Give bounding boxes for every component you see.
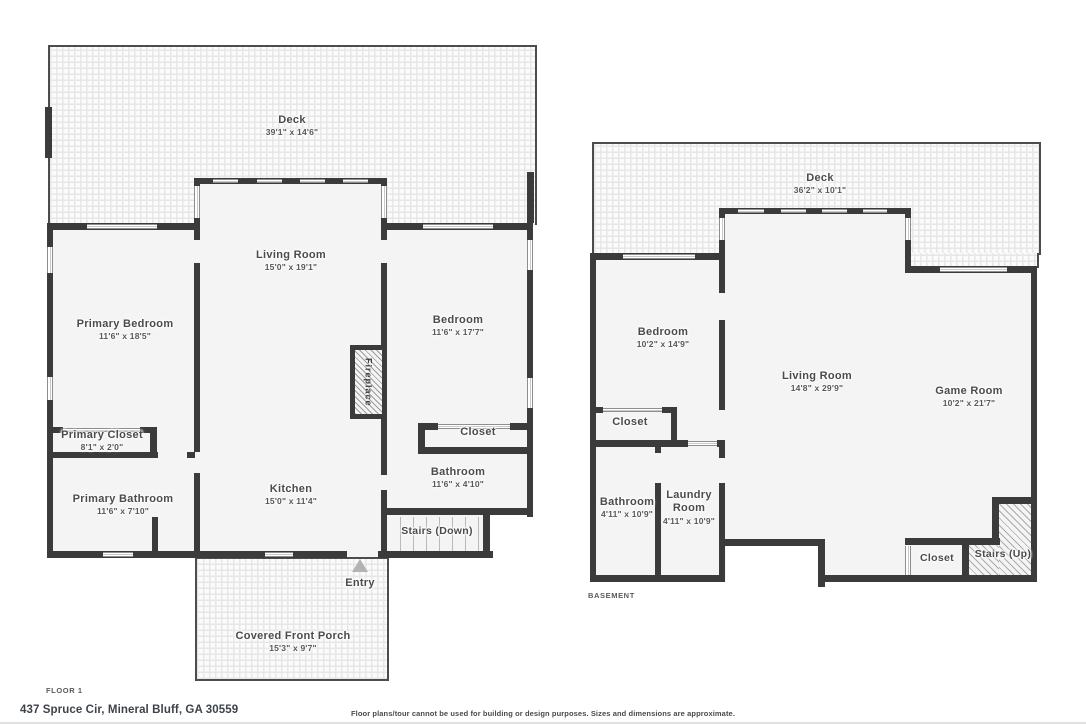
room-name: Deck: [794, 172, 847, 184]
wall-segment: [527, 172, 534, 223]
wall-segment: [510, 423, 528, 430]
fireplace-box: Fireplace: [350, 345, 387, 419]
wall-segment: [962, 538, 969, 582]
stair-tread: [478, 517, 479, 551]
room-name: Living Room: [256, 249, 326, 261]
room-name: Bathroom: [600, 496, 654, 508]
wall-segment: [595, 407, 603, 413]
room-name: Closet: [460, 426, 495, 438]
window: [343, 179, 368, 183]
wall-segment: [483, 508, 490, 558]
room-name: Primary Bedroom: [77, 318, 174, 330]
room-label-deck-f1: Deck 39'1" x 14'6": [266, 114, 319, 137]
room-label-bedroom-f1: Bedroom 11'6" x 17'7": [432, 314, 484, 337]
wall-segment: [187, 452, 195, 458]
room-label-closet2-basement: Closet: [920, 552, 954, 564]
wall-segment: [655, 447, 661, 453]
wall-segment: [194, 218, 200, 240]
room-dims: 10'2" x 21'7": [935, 398, 1003, 408]
room-name: Primary Bathroom: [73, 493, 174, 505]
basement-caption: BASEMENT: [588, 591, 635, 600]
window: [738, 209, 764, 213]
room-label-primary-closet: Primary Closet 8'1" x 2'0": [61, 429, 143, 452]
entry-arrow-icon: [352, 559, 368, 572]
window: [87, 224, 157, 229]
room-label-covered-front-porch: Covered Front Porch 15'3" x 9'7": [235, 630, 350, 653]
room-dims: 11'6" x 7'10": [73, 506, 174, 516]
window: [863, 209, 887, 213]
wall-segment: [194, 473, 200, 557]
room-label-stairs-up: Stairs (Up): [975, 548, 1031, 560]
room-dims: 15'3" x 9'7": [235, 643, 350, 653]
room-dims: 8'1" x 2'0": [61, 442, 143, 452]
wall-segment: [590, 440, 688, 447]
room-label-living-room-basement: Living Room 14'8" x 29'9": [782, 370, 852, 393]
room-name: Bedroom: [637, 326, 690, 338]
room-name: Closet: [920, 552, 954, 564]
wall-segment: [719, 320, 725, 410]
wall-segment: [418, 423, 438, 430]
stairs-up-hatch: [999, 504, 1031, 575]
room-label-primary-bathroom: Primary Bathroom 11'6" x 7'10": [73, 493, 174, 516]
wall-segment: [381, 490, 387, 557]
room-name: Bedroom: [432, 314, 484, 326]
wall-segment: [725, 539, 825, 546]
wall-segment: [823, 575, 1037, 582]
room-dims: 39'1" x 14'6": [266, 127, 319, 137]
room-name: Stairs (Down): [401, 525, 473, 537]
wall-segment: [719, 440, 725, 458]
floorplan-canvas: Fireplace Deck 39'1" x 14'6" Living Room…: [0, 0, 1086, 724]
room-label-bathroom-f1: Bathroom 11'6" x 4'10": [431, 466, 485, 489]
room-label-bathroom-basement: Bathroom 4'11" x 10'9": [600, 496, 654, 519]
room-dims: 11'6" x 17'7": [432, 327, 484, 337]
room-dims: 14'8" x 29'9": [782, 383, 852, 393]
floor1-exterior-notch: [490, 515, 534, 558]
window: [300, 179, 325, 183]
window: [527, 240, 533, 270]
room-dims: 15'0" x 11'4": [265, 496, 317, 506]
wall-segment: [194, 263, 200, 452]
wall-segment: [590, 253, 596, 582]
window: [103, 552, 133, 557]
window: [194, 186, 200, 218]
wall-segment: [719, 240, 725, 293]
room-name: Entry: [345, 577, 375, 589]
wall-segment: [418, 447, 533, 454]
room-label-deck-basement: Deck 36'2" x 10'1": [794, 172, 847, 195]
room-name: Deck: [266, 114, 319, 126]
room-name: Kitchen: [265, 483, 317, 495]
wall-segment: [992, 497, 999, 545]
window: [822, 209, 847, 213]
room-name: Stairs (Up): [975, 548, 1031, 560]
basement-exterior-notch: [726, 546, 818, 587]
window: [781, 209, 806, 213]
room-dims: 36'2" x 10'1": [794, 185, 847, 195]
wall-segment: [381, 417, 387, 475]
wall-segment: [381, 263, 387, 347]
wall-segment: [378, 551, 493, 558]
room-name: Laundry Room: [651, 489, 727, 515]
window: [381, 186, 387, 218]
floor1-livingroom-interior: [195, 178, 387, 224]
room-label-living-room-f1: Living Room 15'0" x 19'1": [256, 249, 326, 272]
room-dims: 11'6" x 4'10": [431, 479, 485, 489]
room-name: Bathroom: [431, 466, 485, 478]
window: [905, 546, 911, 575]
room-dims: 4'11" x 10'9": [651, 516, 727, 526]
wall-segment: [992, 497, 1037, 504]
wall-segment: [905, 208, 911, 218]
window: [603, 408, 662, 412]
room-name: Covered Front Porch: [235, 630, 350, 642]
window: [719, 218, 725, 240]
property-address: 437 Spruce Cir, Mineral Bluff, GA 30559: [20, 704, 238, 716]
room-label-closet-f1: Closet: [460, 426, 495, 438]
window: [688, 441, 717, 446]
wall-segment: [1031, 266, 1037, 582]
room-name: Living Room: [782, 370, 852, 382]
wall-segment: [905, 538, 1000, 545]
fireplace-label: Fireplace: [364, 358, 374, 407]
window: [265, 552, 293, 557]
window: [905, 218, 911, 240]
room-dims: 10'2" x 14'9": [637, 339, 690, 349]
window: [47, 377, 53, 400]
wall-segment: [383, 508, 533, 515]
room-label-bedroom-basement: Bedroom 10'2" x 14'9": [637, 326, 690, 349]
wall-segment: [47, 452, 158, 458]
room-dims: 11'6" x 18'5": [77, 331, 174, 341]
wall-segment: [381, 218, 387, 240]
window: [527, 378, 533, 408]
window: [47, 247, 53, 273]
room-label-primary-bedroom: Primary Bedroom 11'6" x 18'5": [77, 318, 174, 341]
room-label-kitchen: Kitchen 15'0" x 11'4": [265, 483, 317, 506]
disclaimer-text: Floor plans/tour cannot be used for buil…: [351, 709, 735, 718]
room-label-stairs-down: Stairs (Down): [401, 525, 473, 537]
window: [623, 254, 695, 259]
wall-segment: [152, 517, 158, 557]
room-name: Primary Closet: [61, 429, 143, 441]
room-label-entry: Entry: [345, 577, 375, 589]
room-name: Closet: [612, 416, 647, 428]
window: [213, 179, 238, 183]
floor1-porch-area: [195, 557, 389, 681]
wall-segment: [45, 107, 52, 158]
window: [257, 179, 282, 183]
room-label-closet-basement: Closet: [612, 416, 647, 428]
window: [940, 267, 1007, 272]
floor1-caption: FLOOR 1: [46, 686, 83, 695]
room-name: Game Room: [935, 385, 1003, 397]
room-dims: 15'0" x 19'1": [256, 262, 326, 272]
room-label-game-room: Game Room 10'2" x 21'7": [935, 385, 1003, 408]
window: [423, 224, 493, 229]
room-label-laundry-room: Laundry Room 4'11" x 10'9": [651, 489, 727, 527]
basement-livingroom-interior: [719, 208, 911, 253]
room-dims: 4'11" x 10'9": [600, 509, 654, 519]
